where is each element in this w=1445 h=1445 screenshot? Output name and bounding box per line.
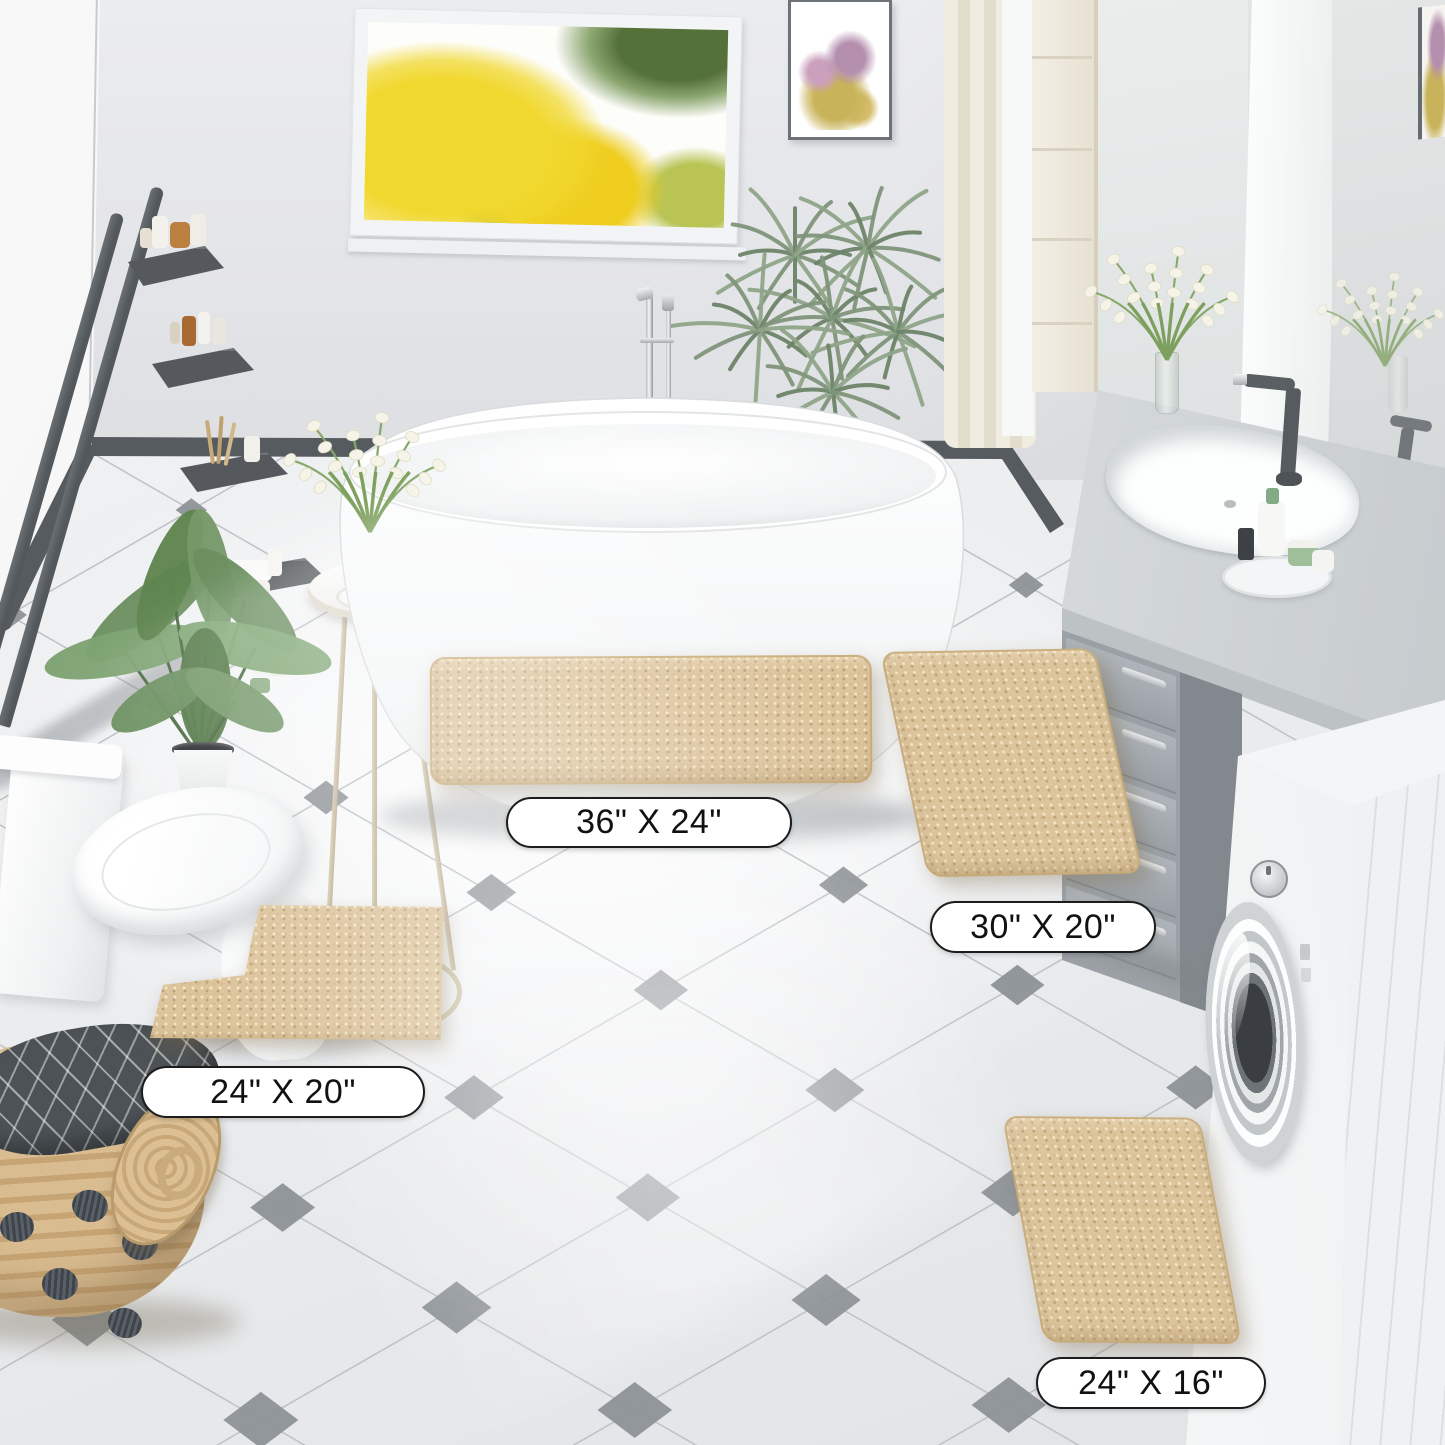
cosmetic-jar: [392, 566, 422, 591]
cosmetic-jar: [1312, 550, 1334, 572]
tub-faucet-bar: [640, 338, 674, 343]
sink-drain: [1224, 500, 1236, 508]
shelf-item: [268, 548, 282, 576]
shelf-item: [234, 580, 270, 596]
shelf-item: [250, 678, 270, 693]
shelf-item: [244, 436, 260, 462]
contour-rug-surface: [145, 895, 450, 1047]
shelf-item: [270, 648, 284, 676]
cosmetic-bottle: [1238, 528, 1254, 560]
size-label-30x20: 30" X 20": [930, 901, 1156, 953]
cosmetic-bottle: [352, 546, 366, 574]
shelf-item: [182, 316, 196, 346]
flower-vase: [1155, 352, 1179, 414]
shelf-item: [198, 312, 210, 344]
faucet-spout: [1233, 374, 1247, 385]
shelf-item: [212, 318, 226, 345]
shelf-item: [228, 560, 272, 582]
washer-button: [1300, 944, 1310, 960]
size-label-24x16: 24" X 16": [1036, 1357, 1266, 1409]
window: [349, 8, 742, 245]
lotion-bottle: [1258, 502, 1285, 556]
lotion-pump: [1266, 488, 1279, 504]
tub-faucet: [646, 296, 653, 426]
faucet-base: [1276, 472, 1302, 486]
bath-rug-24x16: [1002, 1116, 1242, 1344]
bathroom-scene: 36" X 24" 30" X 20" 24" X 20" 24" X 16": [0, 0, 1445, 1445]
size-label-36x24: 36" X 24": [506, 797, 792, 848]
wall-art-print: [797, 30, 883, 130]
washer-button: [1301, 968, 1311, 982]
shelf-item: [170, 222, 190, 248]
shelf-item: [140, 228, 152, 248]
shelf-item: [170, 322, 180, 344]
contour-rug-24x20: [145, 895, 450, 1047]
lotion-pump: [382, 514, 395, 529]
cabinet-shelf-line: [1032, 56, 1092, 59]
mirror-art-reflection: [1418, 4, 1445, 139]
washer-dial-marker: [1266, 866, 1271, 875]
wall-art: [788, 0, 892, 140]
shelf-item: [252, 640, 268, 676]
tub-hand-shower: [666, 306, 671, 424]
mirror-vase-reflection: [1388, 356, 1408, 412]
window-view-trees: [364, 22, 728, 228]
tub-shower-head: [662, 294, 674, 311]
cosmetic-jar: [360, 574, 380, 592]
shelf-item: [191, 214, 206, 246]
cabinet-shelf-line: [1032, 148, 1092, 151]
shelf-item: [152, 216, 168, 248]
bath-rug-36x24: [430, 655, 873, 785]
wall-pillar: [1002, 0, 1034, 436]
drawer-handle: [1122, 666, 1166, 689]
drawer-handle: [1122, 728, 1166, 751]
cabinet-shelf-line: [1032, 238, 1092, 241]
size-label-24x20: 24" X 20": [141, 1066, 425, 1118]
mirror-panel: [1332, 0, 1445, 470]
cabinet-shelf-line: [1032, 322, 1092, 325]
